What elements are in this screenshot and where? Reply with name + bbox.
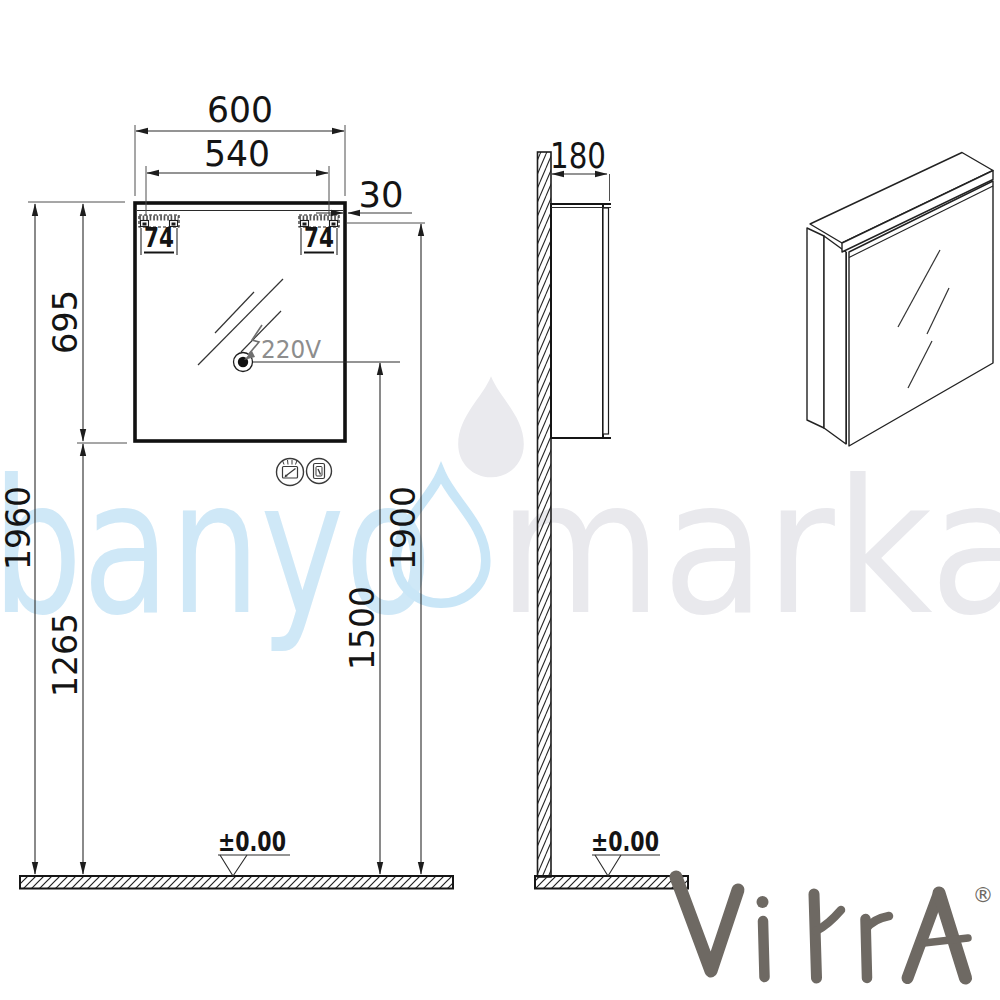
dim-outlet-height: 1500 <box>343 586 382 670</box>
watermark-word-right: marka <box>498 440 1000 656</box>
logo-letter-i <box>763 921 765 977</box>
floor-hatch-side <box>535 876 688 889</box>
floor-level-marker-side: ±0.00 <box>591 827 660 876</box>
logo-letter-i-dot <box>757 896 769 908</box>
dim-bracket-left: 74 <box>141 223 177 255</box>
svg-text:74: 74 <box>144 223 174 253</box>
logo-letter-a <box>908 893 940 978</box>
cabinet-3d-left-panel <box>807 228 824 428</box>
perspective-view <box>807 153 993 447</box>
vitra-logo: ® <box>676 877 994 978</box>
svg-text:74: 74 <box>304 223 334 253</box>
dim-total-height: 1960 <box>0 486 38 570</box>
dim-bracket-right: 74 <box>301 223 337 255</box>
cabinet-3d-left-face <box>824 236 846 444</box>
voltage-label: 220V <box>261 336 322 364</box>
floor-level-marker-front: ±0.00 <box>218 827 290 876</box>
logo-letter-v <box>676 877 738 971</box>
cabinet-side-outline <box>551 204 603 438</box>
mirror-door-side <box>603 208 609 434</box>
svg-text:±0.00: ±0.00 <box>591 827 659 857</box>
dim-bottom-height: 1265 <box>46 613 85 697</box>
dim-depth: 180 <box>550 135 606 176</box>
dim-side-panel: 30 <box>359 174 404 215</box>
floor-hatch-front <box>20 876 453 889</box>
technical-drawing: banyo marka 74 74 <box>0 0 1000 1000</box>
logo-letter-t <box>814 894 817 978</box>
dim-door-width: 540 <box>204 133 270 174</box>
registered-mark: ® <box>973 883 994 907</box>
dim-top-height: 1900 <box>384 486 423 570</box>
wall-hatch <box>538 152 552 877</box>
dim-width: 600 <box>207 89 273 130</box>
svg-text:±0.00: ±0.00 <box>218 827 286 857</box>
dim-cabinet-height: 695 <box>46 290 85 354</box>
